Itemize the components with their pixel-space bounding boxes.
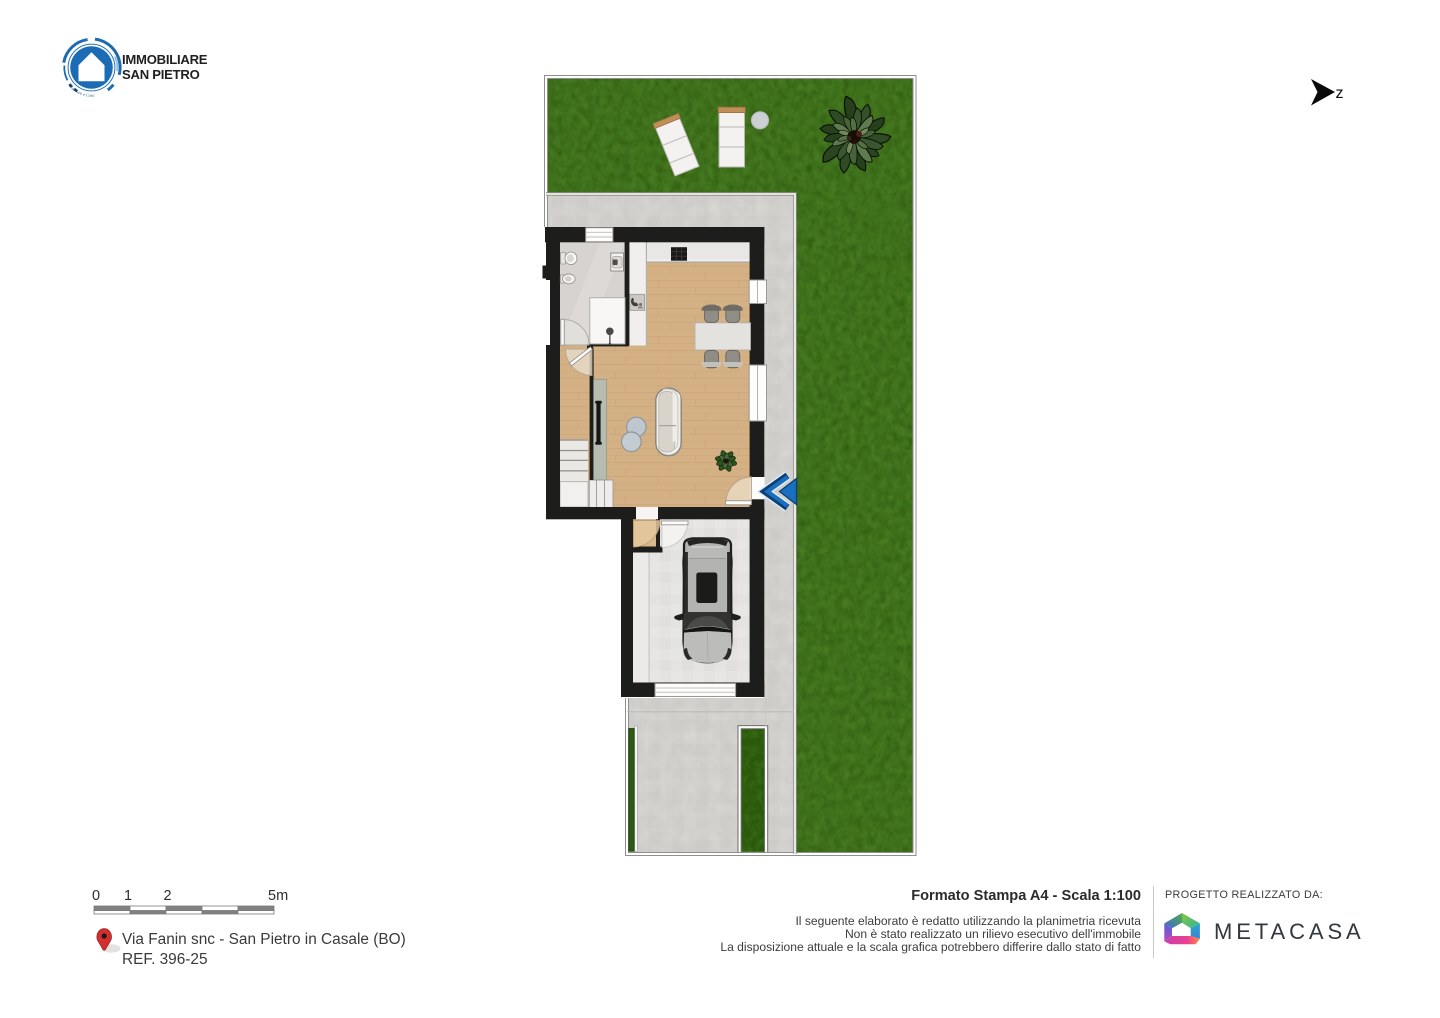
svg-text:METACASA: METACASA — [1214, 919, 1365, 944]
svg-text:z: z — [1336, 85, 1344, 102]
